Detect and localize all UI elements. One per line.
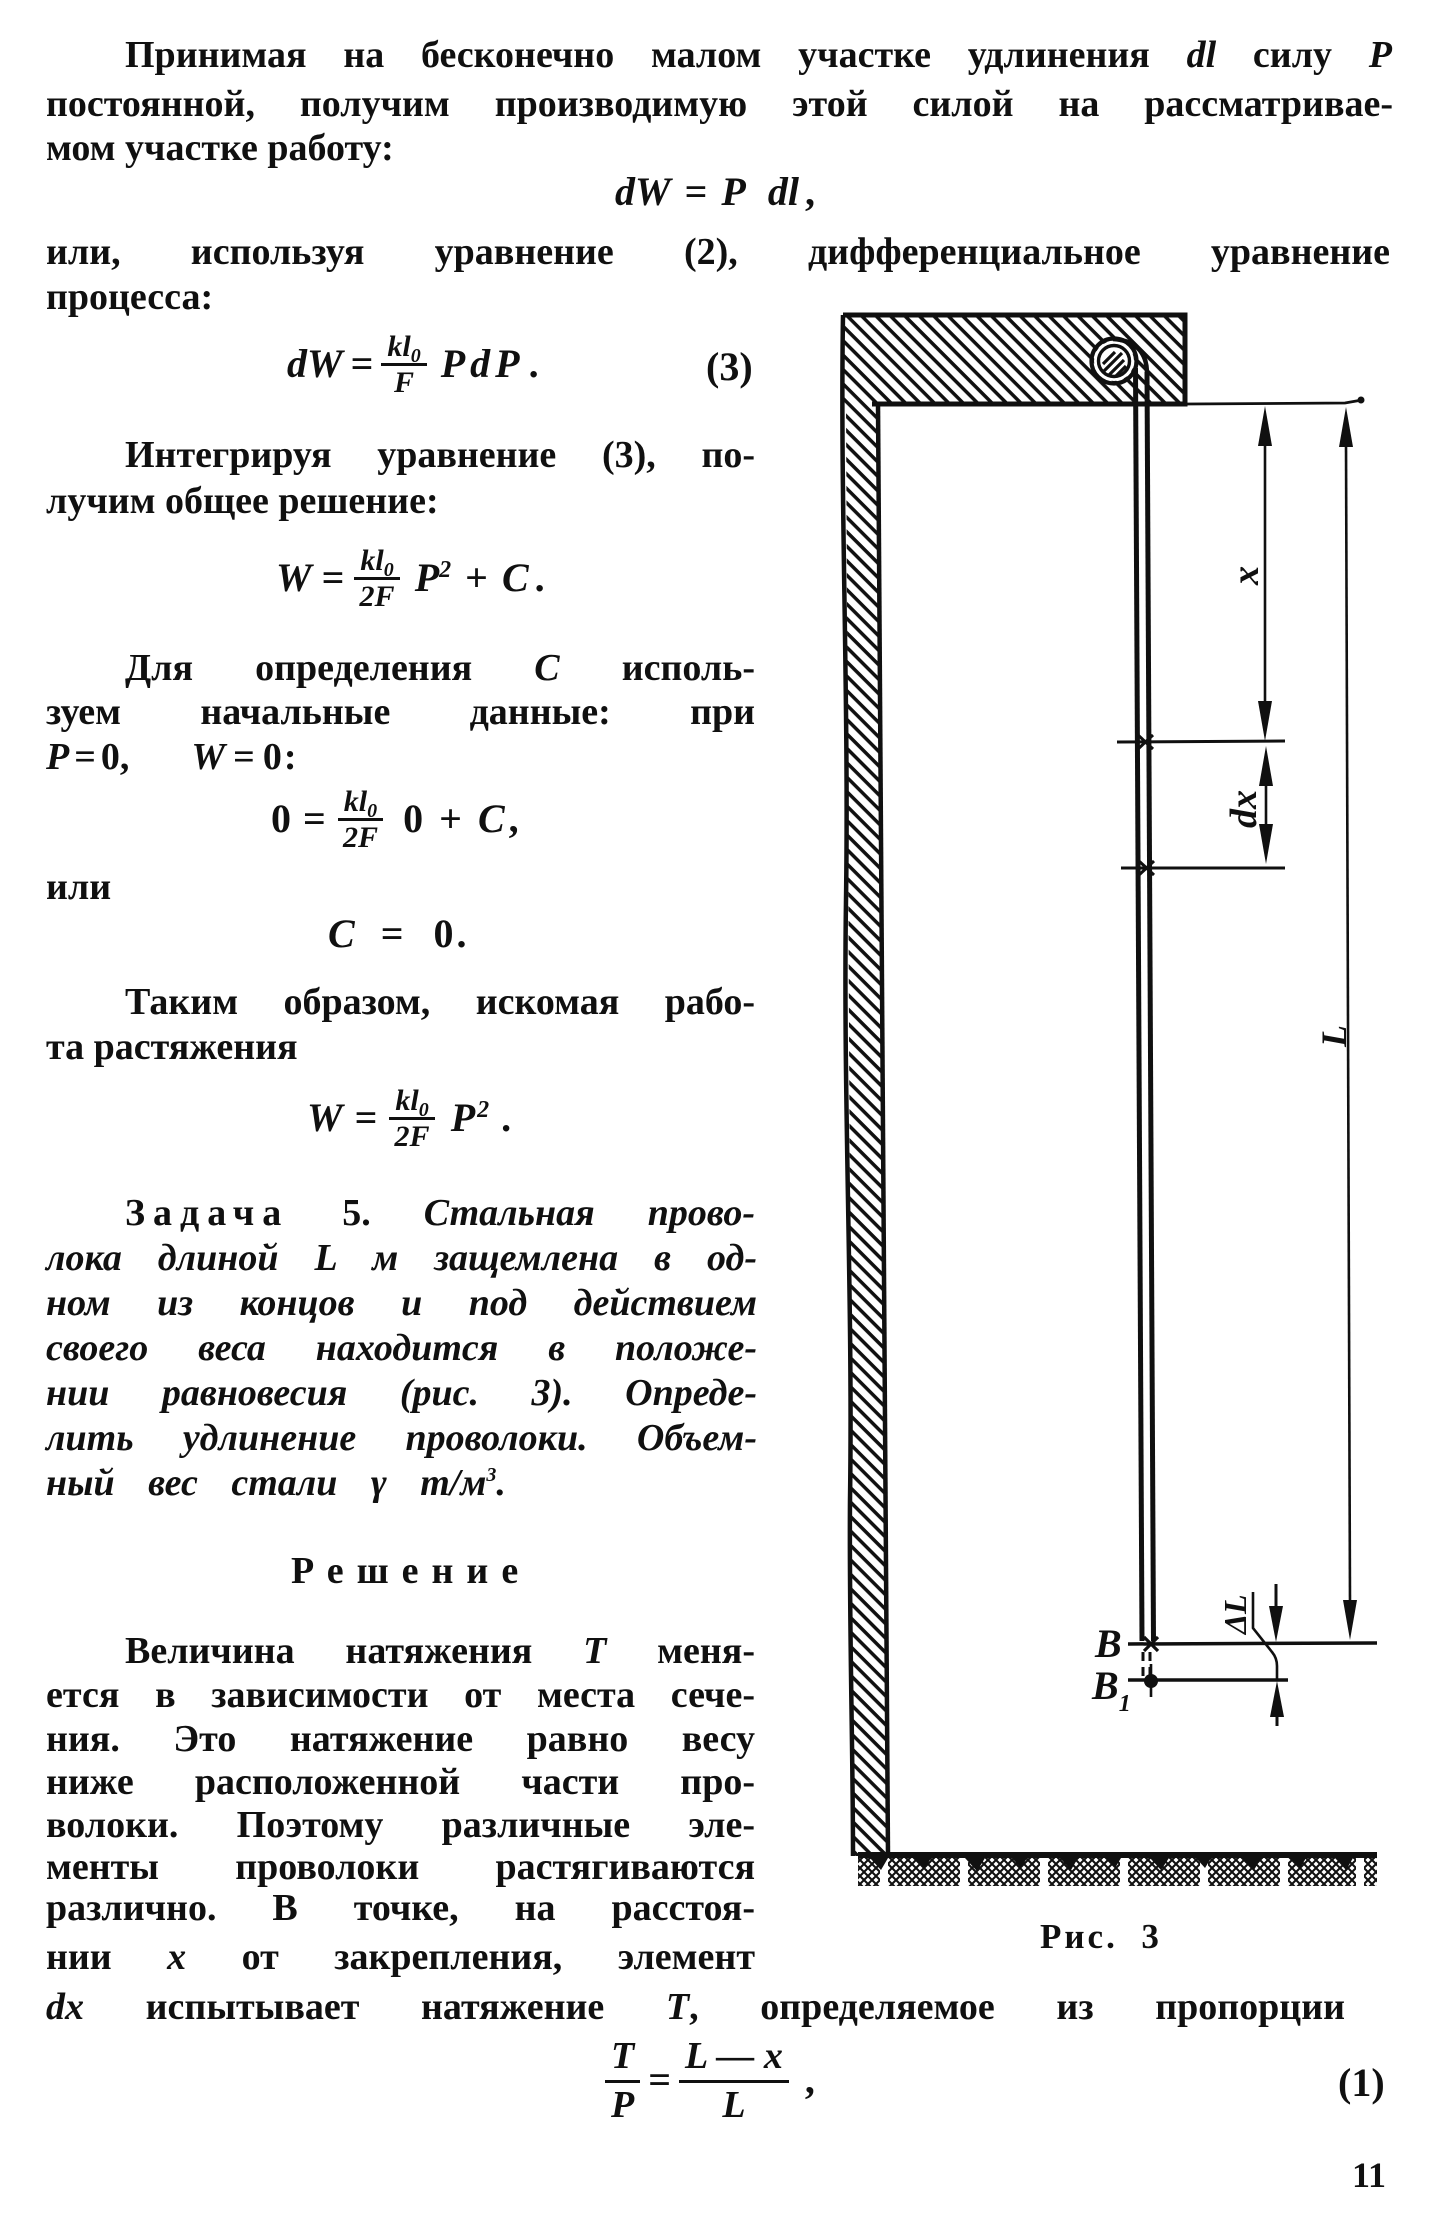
svg-text:ΔL: ΔL xyxy=(1217,1594,1253,1636)
svg-text:L: L xyxy=(1314,1025,1354,1048)
svg-text:dх: dх xyxy=(1223,790,1265,828)
svg-text:х: х xyxy=(1225,566,1267,586)
svg-text:В: В xyxy=(1094,1621,1122,1666)
svg-text:В1: В1 xyxy=(1091,1663,1131,1717)
